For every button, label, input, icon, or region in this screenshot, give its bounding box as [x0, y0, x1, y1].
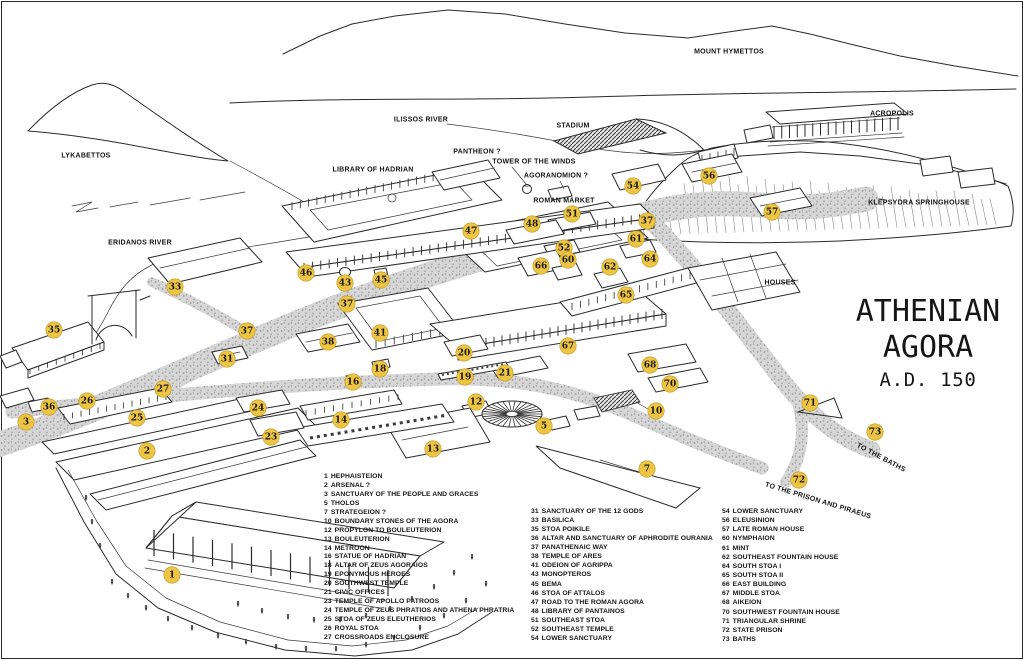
legend-item-label: SANCTUARY OF THE 12 GODS — [542, 508, 644, 515]
legend-item-number: 13 — [324, 536, 332, 543]
legend-item-68: 68AIKEION — [722, 599, 840, 608]
southwest-fountain-house-building — [648, 368, 708, 392]
legend-item-label: STOA OF ATTALOS — [542, 590, 605, 597]
legend-item-label: ROYAL STOA — [335, 625, 379, 632]
acropolis-building-east-2 — [958, 168, 995, 188]
legend-item-label: STRATEGEION ? — [331, 509, 386, 516]
legend-item-26: 26ROYAL STOA — [324, 625, 514, 634]
marker-54: 54 — [625, 178, 642, 195]
map-label-library-of-hadrian: LIBRARY OF HADRIAN — [332, 167, 413, 174]
legend-item-13: 13BOULEUTERION — [324, 536, 514, 545]
legend-item-52: 52SOUTHEAST TEMPLE — [531, 626, 713, 635]
legend-item-number: 57 — [722, 526, 730, 533]
legend-item-label: MONOPTEROS — [542, 571, 592, 578]
legend-item-57: 57LATE ROMAN HOUSE — [722, 526, 840, 535]
legend-item-18: 18ALTAR OF ZEUS AGORAIOS — [324, 562, 514, 571]
legend-item-number: 62 — [722, 554, 730, 561]
legend-item-number: 73 — [722, 636, 730, 643]
legend-item-number: 71 — [722, 618, 730, 625]
legend-item-number: 46 — [531, 590, 539, 597]
marker-45: 45 — [373, 272, 390, 289]
tholos-annex-2 — [574, 406, 600, 420]
legend-item-label: SOUTHEAST TEMPLE — [542, 626, 614, 633]
legend-item-38: 38TEMPLE OF ARES — [531, 553, 713, 562]
marker-10-pointer — [636, 402, 648, 409]
lykabettos-hill — [28, 83, 228, 161]
legend-item-label: SOUTHEAST FOUNTAIN HOUSE — [733, 554, 839, 561]
legend-item-72: 72STATE PRISON — [722, 627, 840, 636]
marker-48: 48 — [524, 216, 541, 233]
map-label-klepsydra-springhouse: KLEPSYDRA SPRINGHOUSE — [868, 200, 970, 207]
legend-item-45: 45BEMA — [531, 581, 713, 590]
legend-item-label: SANCTUARY OF THE PEOPLE AND GRACES — [331, 491, 479, 498]
legend-item-number: 24 — [324, 607, 332, 614]
mid-horizon — [230, 89, 1016, 103]
legend-item-label: BASILICA — [542, 517, 575, 524]
legend-item-number: 64 — [722, 563, 730, 570]
marker-67: 67 — [560, 338, 577, 355]
marker-16: 16 — [345, 374, 362, 391]
legend-item-label: ELEUSINION — [733, 517, 775, 524]
marker-25: 25 — [129, 410, 146, 427]
marker-70: 70 — [662, 376, 679, 393]
legend-item-16: 16STATUE OF HADRIAN — [324, 553, 514, 562]
legend-item-46: 46STOA OF ATTALOS — [531, 590, 713, 599]
marker-51: 51 — [564, 206, 581, 223]
legend-item-60: 60NYMPHAION — [722, 535, 840, 544]
map-label-roman-market: ROMAN MARKET — [533, 198, 594, 205]
marker-13: 13 — [425, 441, 442, 458]
legend-column-2: 31SANCTUARY OF THE 12 GODS33BASILICA35ST… — [531, 508, 713, 645]
legend-item-label: TEMPLE OF APOLLO PATROOS — [335, 598, 440, 605]
scale-squiggle — [72, 192, 245, 212]
legend-item-number: 16 — [324, 553, 332, 560]
legend-item-label: STATUE OF HADRIAN — [335, 553, 407, 560]
legend-item-7: 7STRATEGEION ? — [324, 509, 514, 518]
marker-20: 20 — [456, 345, 473, 362]
legend-item-number: 1 — [324, 473, 328, 480]
marker-66: 66 — [533, 258, 550, 275]
legend-item-number: 20 — [324, 580, 332, 587]
legend-item-number: 14 — [324, 545, 332, 552]
legend-item-35: 35STOA POIKILE — [531, 526, 713, 535]
marker-73: 73 — [867, 424, 884, 441]
legend-item-label: METROON — [335, 545, 370, 552]
marker-2: 2 — [139, 443, 156, 460]
legend-item-43: 43MONOPTEROS — [531, 571, 713, 580]
marker-19: 19 — [457, 369, 474, 386]
legend-item-12: 12PROPYLON TO BOULEUTERION — [324, 527, 514, 536]
legend-item-number: 26 — [324, 625, 332, 632]
legend-item-number: 45 — [531, 581, 539, 588]
marker-43: 43 — [337, 275, 354, 292]
marker-31: 31 — [219, 351, 236, 368]
marker-47: 47 — [463, 223, 480, 240]
map-title: ATHENIAN AGORA A.D. 150 — [830, 295, 1024, 391]
legend-item-67: 67MIDDLE STOA — [722, 590, 840, 599]
legend-item-label: ROAD TO THE ROMAN AGORA — [542, 599, 644, 606]
legend-item-number: 56 — [722, 517, 730, 524]
legend-item-number: 18 — [324, 562, 332, 569]
legend-item-56: 56ELEUSINION — [722, 517, 840, 526]
legend-item-31: 31SANCTUARY OF THE 12 GODS — [531, 508, 713, 517]
tholos-building — [482, 401, 542, 427]
legend-item-label: STATE PRISON — [733, 627, 783, 634]
marker-18: 18 — [372, 361, 389, 378]
legend-item-number: 2 — [324, 482, 328, 489]
map-label-houses: HOUSES — [764, 280, 795, 287]
legend-item-number: 43 — [531, 571, 539, 578]
legend-item-24: 24TEMPLE OF ZEUS PHRATIOS AND ATHENA PHR… — [324, 607, 514, 616]
marker-35: 35 — [46, 322, 63, 339]
legend-item-label: PROPYLON TO BOULEUTERION — [335, 527, 442, 534]
legend-item-label: PANATHENAIC WAY — [542, 544, 608, 551]
map-label-tower-of-the-winds: TOWER OF THE WINDS — [492, 159, 575, 166]
legend-item-number: 7 — [324, 509, 328, 516]
legend-item-label: NYMPHAION — [733, 535, 775, 542]
far-ridge — [283, 10, 1018, 76]
legend-item-70: 70SOUTHWEST FOUNTAIN HOUSE — [722, 609, 840, 618]
legend-item-33: 33BASILICA — [531, 517, 713, 526]
legend-item-number: 65 — [722, 572, 730, 579]
legend-item-label: SOUTH STOA I — [733, 563, 782, 570]
marker-21: 21 — [497, 365, 514, 382]
legend-item-51: 51SOUTHEAST STOA — [531, 617, 713, 626]
legend-item-2: 2ARSENAL ? — [324, 482, 514, 491]
marker-64: 64 — [642, 251, 659, 268]
legend-item-number: 19 — [324, 571, 332, 578]
legend-item-number: 38 — [531, 553, 539, 560]
legend-item-number: 27 — [324, 634, 332, 641]
legend-item-label: EPONYMOUS HEROES — [335, 571, 411, 578]
legend-item-label: STOA OF ZEUS ELEUTHERIOS — [335, 616, 436, 623]
acropolis-building-east-1 — [920, 156, 953, 176]
map-label-pantheon: PANTHEON ? — [453, 149, 500, 156]
legend-column-1: 1HEPHAISTEION2ARSENAL ?3SANCTUARY OF THE… — [324, 473, 514, 643]
legend-item-label: HEPHAISTEION — [331, 473, 383, 480]
legend-item-20: 20SOUTHWEST TEMPLE — [324, 580, 514, 589]
marker-68: 68 — [642, 357, 659, 374]
legend-item-label: BOULEUTERION — [335, 536, 390, 543]
legend-item-19: 19EPONYMOUS HEROES — [324, 571, 514, 580]
legend-item-number: 37 — [531, 544, 539, 551]
legend-item-number: 61 — [722, 545, 730, 552]
legend-item-label: STOA POIKILE — [542, 526, 590, 533]
legend-item-label: ALTAR OF ZEUS AGORAIOS — [335, 562, 428, 569]
title-line-2: AGORA — [830, 331, 1024, 364]
tower-of-winds-building — [512, 167, 532, 194]
legend-item-label: LATE ROMAN HOUSE — [733, 526, 805, 533]
legend-column-3: 54LOWER SANCTUARY56ELEUSINION57LATE ROMA… — [722, 508, 840, 645]
legend-item-label: AIKEION — [733, 599, 762, 606]
erechtheion — [744, 125, 773, 143]
marker-57: 57 — [764, 204, 781, 221]
marker-12: 12 — [468, 394, 485, 411]
legend-item-label: CIVIC OFFICES — [335, 589, 385, 596]
legend-item-label: MINT — [733, 545, 750, 552]
marker-46: 46 — [298, 265, 315, 282]
marker-10: 10 — [648, 403, 665, 420]
legend-item-label: EAST BUILDING — [733, 581, 787, 588]
legend-item-number: 12 — [324, 527, 332, 534]
legend-item-25: 25STOA OF ZEUS ELEUTHERIOS — [324, 616, 514, 625]
legend-item-number: 52 — [531, 626, 539, 633]
legend-item-number: 3 — [324, 491, 328, 498]
legend-item-label: BEMA — [542, 581, 562, 588]
legend-item-label: TEMPLE OF ARES — [542, 553, 602, 560]
aikeion-building — [628, 344, 696, 372]
map-label-ilissos-river: ILISSOS RIVER — [394, 117, 448, 124]
legend-item-number: 33 — [531, 517, 539, 524]
legend-item-label: BATHS — [733, 636, 756, 643]
marker-1: 1 — [164, 567, 181, 584]
legend-item-1: 1HEPHAISTEION — [324, 473, 514, 482]
legend-item-number: 60 — [722, 535, 730, 542]
parthenon — [766, 103, 908, 146]
legend-item-label: SOUTHEAST STOA — [542, 617, 605, 624]
legend-item-label: LOWER SANCTUARY — [542, 635, 612, 642]
strategeion-enclosure — [536, 446, 700, 508]
legend-item-number: 54 — [722, 508, 730, 515]
legend-item-label: THOLOS — [331, 500, 360, 507]
legend-item-3: 3SANCTUARY OF THE PEOPLE AND GRACES — [324, 491, 514, 500]
marker-61: 61 — [628, 231, 645, 248]
legend-item-label: SOUTHWEST FOUNTAIN HOUSE — [733, 609, 840, 616]
marker-60: 60 — [560, 252, 577, 269]
legend-item-number: 72 — [722, 627, 730, 634]
legend-item-label: ARSENAL ? — [331, 482, 370, 489]
marker-37: 37 — [239, 323, 256, 340]
marker-41: 41 — [372, 325, 389, 342]
marker-5: 5 — [536, 418, 553, 435]
map-label-eridanos-river: ERIDANOS RIVER — [108, 240, 172, 247]
legend-item-64: 64SOUTH STOA I — [722, 563, 840, 572]
title-line-1: ATHENIAN — [830, 295, 1024, 328]
legend-item-5: 5THOLOS — [324, 500, 514, 509]
legend-item-label: LIBRARY OF PANTAINOS — [542, 608, 625, 615]
map-label-acropolis: ACROPOLIS — [870, 111, 914, 118]
legend-item-number: 48 — [531, 608, 539, 615]
legend-item-number: 41 — [531, 562, 539, 569]
title-line-3: A.D. 150 — [830, 369, 1024, 391]
marker-3: 3 — [18, 414, 35, 431]
legend-item-label: MIDDLE STOA — [733, 590, 780, 597]
legend-item-number: 36 — [531, 535, 539, 542]
legend-item-label: ODEION OF AGRIPPA — [542, 562, 613, 569]
legend-item-number: 31 — [531, 508, 539, 515]
marker-38: 38 — [320, 334, 337, 351]
legend-item-label: BOUNDARY STONES OF THE AGORA — [335, 518, 459, 525]
legend-item-73: 73BATHS — [722, 636, 840, 645]
legend-item-62: 62SOUTHEAST FOUNTAIN HOUSE — [722, 554, 840, 563]
legend-item-label: TEMPLE OF ZEUS PHRATIOS AND ATHENA PHRAT… — [335, 607, 515, 614]
map-label-mount-hymettos: MOUNT HYMETTOS — [694, 49, 764, 56]
pantheon-building — [432, 160, 500, 190]
legend-item-number: 67 — [722, 590, 730, 597]
legend-item-number: 68 — [722, 599, 730, 606]
legend-item-number: 25 — [324, 616, 332, 623]
legend-item-label: SOUTH STOA II — [733, 572, 784, 579]
legend-item-71: 71TRIANGULAR SHRINE — [722, 618, 840, 627]
legend-item-label: LOWER SANCTUARY — [733, 508, 803, 515]
legend-item-label: ALTAR AND SANCTUARY OF APHRODITE OURANIA — [542, 535, 713, 542]
legend-item-54: 54LOWER SANCTUARY — [531, 635, 713, 644]
marker-71: 71 — [802, 395, 819, 412]
marker-24: 24 — [250, 400, 267, 417]
map-label-lykabettos: LYKABETTOS — [61, 153, 110, 160]
marker-56: 56 — [701, 168, 718, 185]
marker-62: 62 — [602, 259, 619, 276]
legend-item-label: SOUTHWEST TEMPLE — [335, 580, 409, 587]
legend-item-48: 48LIBRARY OF PANTAINOS — [531, 608, 713, 617]
legend-item-41: 41ODEION OF AGRIPPA — [531, 562, 713, 571]
legend-item-27: 27CROSSROADS ENCLOSURE — [324, 634, 514, 643]
marker-36: 36 — [41, 399, 58, 416]
legend-item-number: 66 — [722, 581, 730, 588]
marker-65: 65 — [618, 287, 635, 304]
legend-item-number: 35 — [531, 526, 539, 533]
legend-item-54: 54LOWER SANCTUARY — [722, 508, 840, 517]
marker-23: 23 — [263, 429, 280, 446]
marker-72: 72 — [791, 472, 808, 489]
legend-item-number: 47 — [531, 599, 539, 606]
marker-7: 7 — [639, 461, 656, 478]
legend-item-number: 21 — [324, 589, 332, 596]
legend-item-number: 54 — [531, 635, 539, 642]
marker-14: 14 — [333, 412, 350, 429]
marker-33: 33 — [167, 279, 184, 296]
legend-item-number: 10 — [324, 518, 332, 525]
legend-item-number: 23 — [324, 598, 332, 605]
athenian-agora-map-page: MOUNT HYMETTOSLYKABETTOSILISSOS RIVERSTA… — [0, 0, 1024, 660]
legend-item-label: CROSSROADS ENCLOSURE — [335, 634, 429, 641]
map-label-stadium: STADIUM — [556, 123, 589, 130]
legend-item-66: 66EAST BUILDING — [722, 581, 840, 590]
marker-26: 26 — [79, 393, 96, 410]
map-label-agoranomion: AGORANOMION ? — [524, 173, 588, 180]
road-to-prison — [786, 402, 802, 482]
legend-item-number: 51 — [531, 617, 539, 624]
marker-27: 27 — [155, 381, 172, 398]
legend-item-21: 21CIVIC OFFICES — [324, 589, 514, 598]
legend-item-61: 61MINT — [722, 545, 840, 554]
legend-item-65: 65SOUTH STOA II — [722, 572, 840, 581]
marker-37: 37 — [639, 213, 656, 230]
legend-item-37: 37PANATHENAIC WAY — [531, 544, 713, 553]
marker-37: 37 — [339, 296, 356, 313]
legend-item-number: 70 — [722, 609, 730, 616]
legend-item-14: 14METROON — [324, 545, 514, 554]
legend-item-47: 47ROAD TO THE ROMAN AGORA — [531, 599, 713, 608]
legend-item-36: 36ALTAR AND SANCTUARY OF APHRODITE OURAN… — [531, 535, 713, 544]
legend-item-label: TRIANGULAR SHRINE — [733, 618, 806, 625]
legend-item-23: 23TEMPLE OF APOLLO PATROOS — [324, 598, 514, 607]
legend-item-10: 10BOUNDARY STONES OF THE AGORA — [324, 518, 514, 527]
legend-item-number: 5 — [324, 500, 328, 507]
